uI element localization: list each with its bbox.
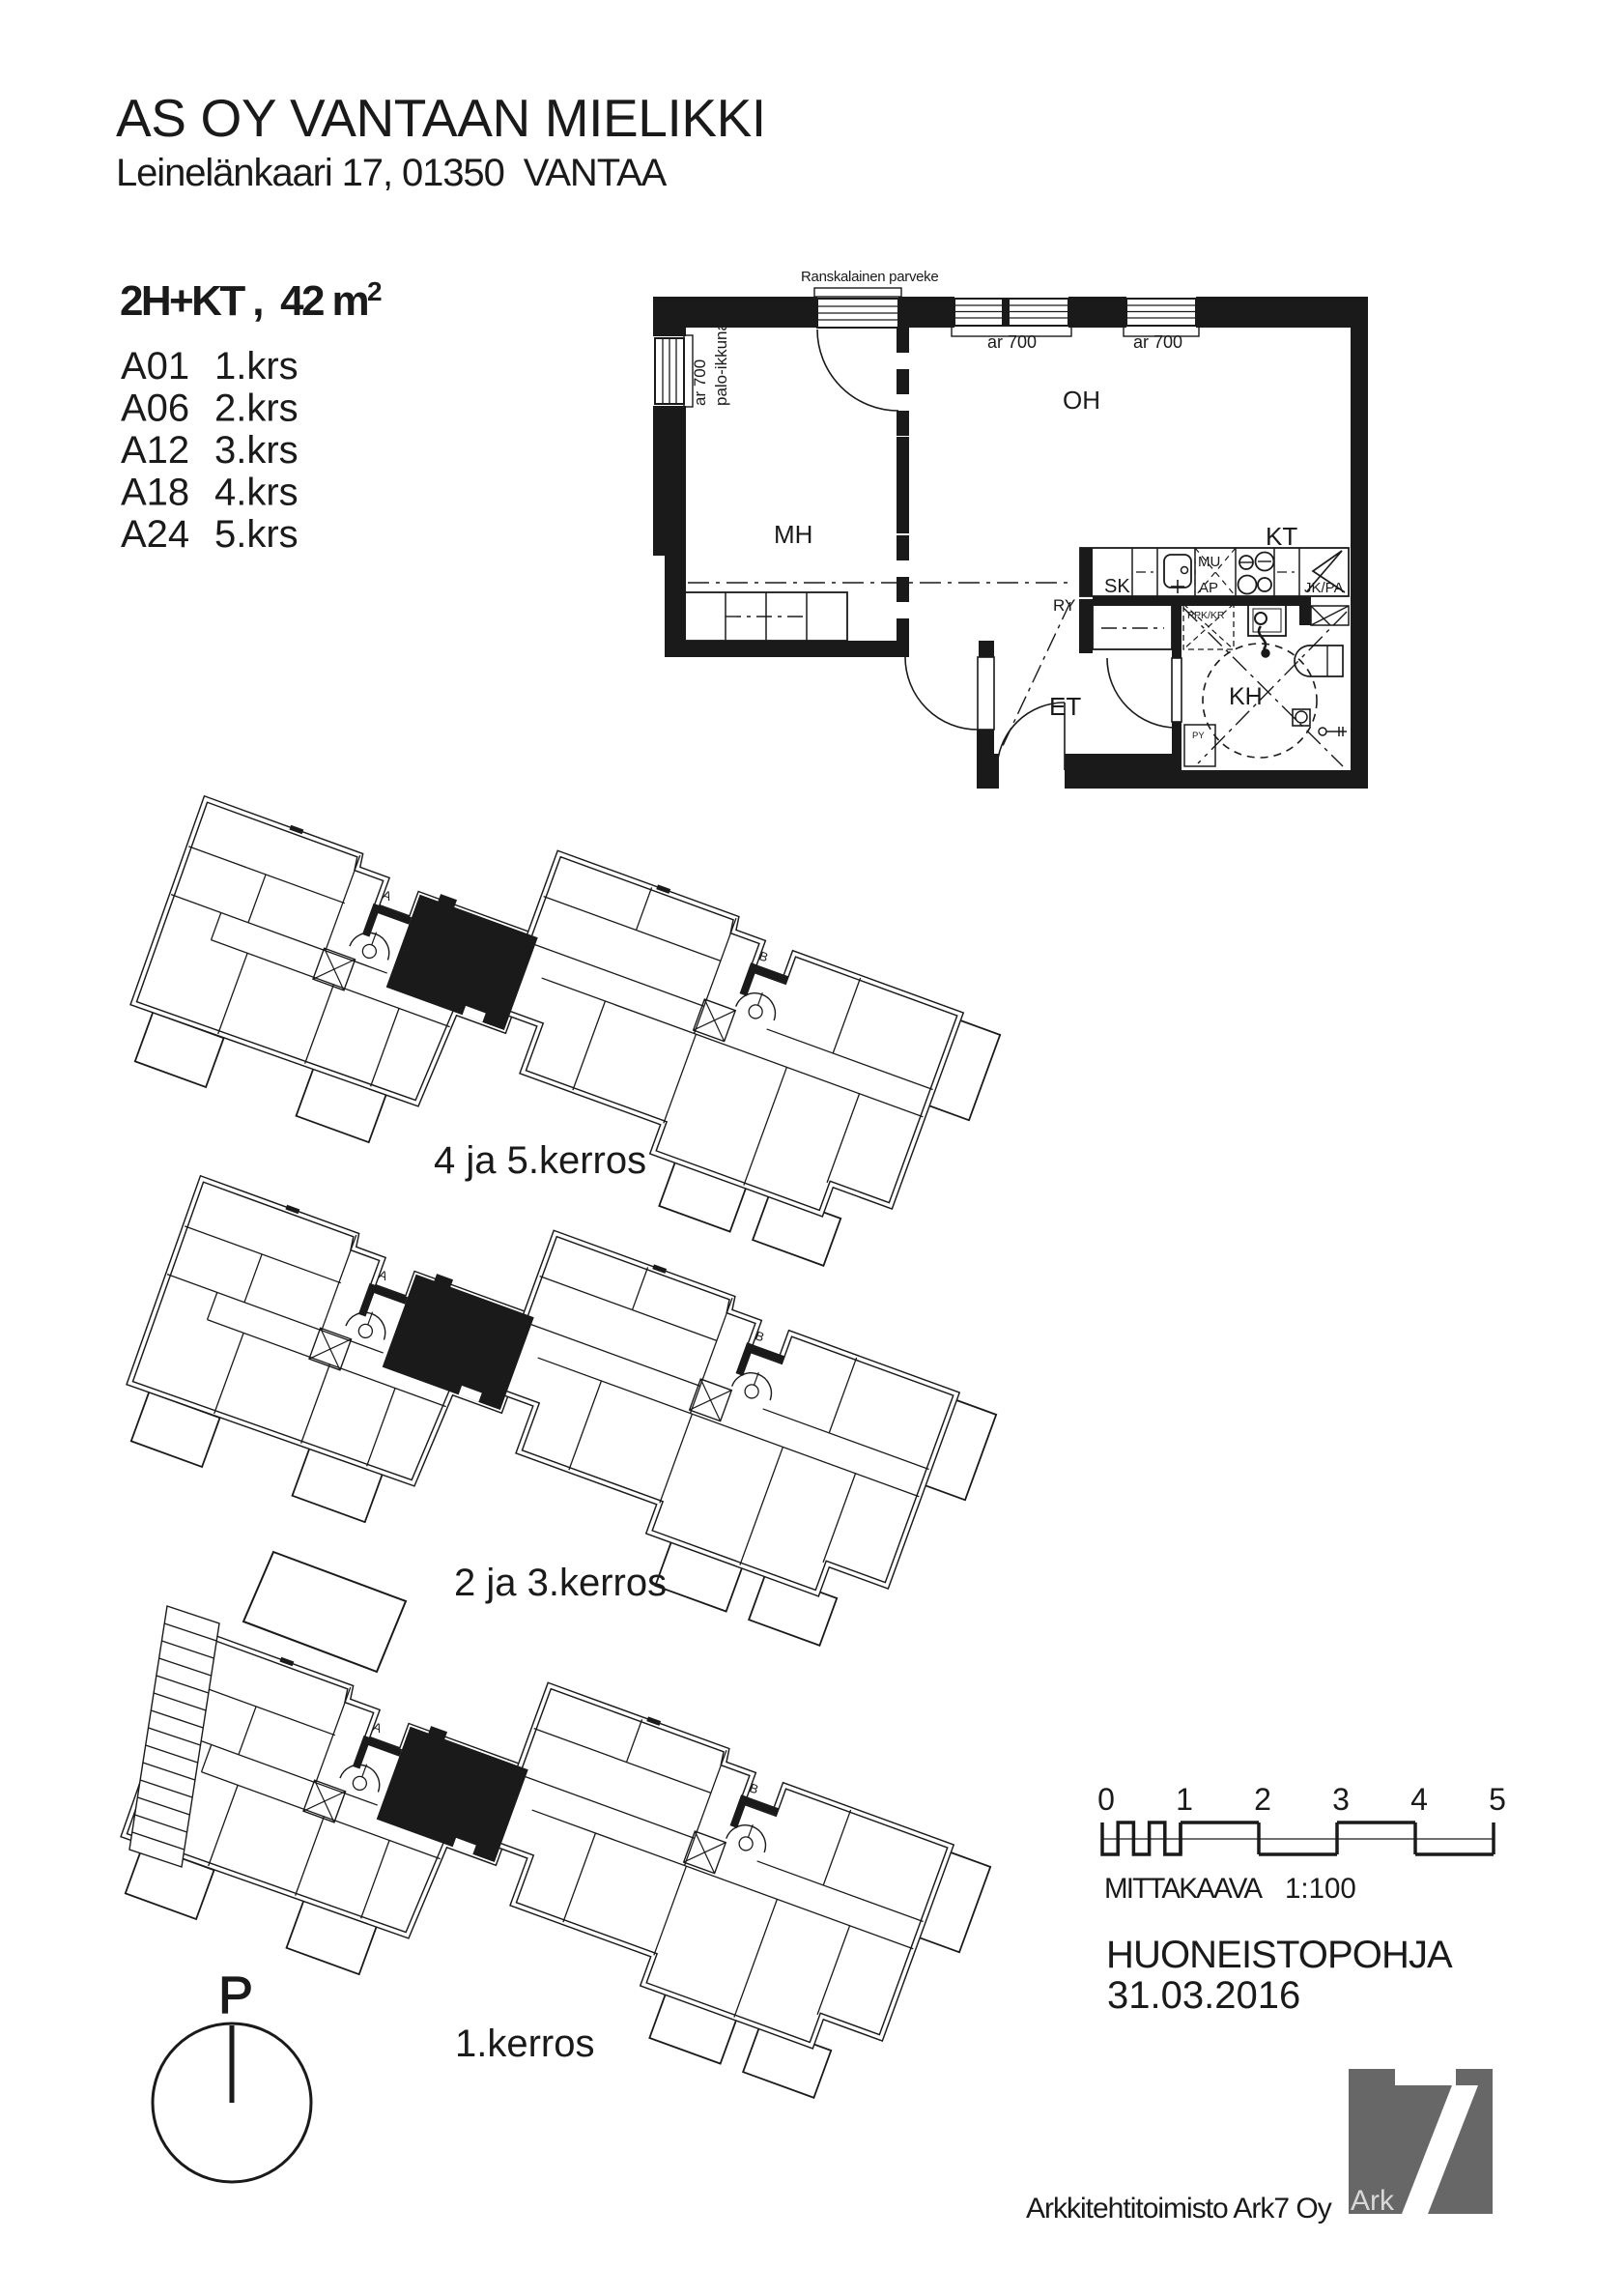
svg-text:2H+KT , 42 m2: 2H+KT , 42 m2 [120, 276, 382, 325]
svg-text:1: 1 [1176, 1782, 1193, 1817]
svg-text:ar 700: ar 700 [691, 359, 709, 406]
svg-text:Leinelänkaari 17, 01350 VANTA: Leinelänkaari 17, 01350 VANTAA [116, 152, 668, 194]
svg-text:A06: A06 [121, 387, 189, 430]
svg-text:2: 2 [1254, 1782, 1271, 1817]
svg-text:KT: KT [1266, 522, 1297, 551]
svg-text:JK/PA: JK/PA [1304, 580, 1344, 596]
svg-text:ar 700: ar 700 [1133, 332, 1182, 352]
svg-text:HUONEISTOPOHJA: HUONEISTOPOHJA [1106, 1934, 1453, 1976]
svg-text:ET: ET [1049, 692, 1081, 721]
svg-text:31.03.2016: 31.03.2016 [1107, 1974, 1300, 2017]
svg-text:2.krs: 2.krs [214, 387, 299, 430]
svg-text:4 ja 5.kerros: 4 ja 5.kerros [434, 1139, 646, 1182]
svg-text:ar 700: ar 700 [987, 332, 1037, 352]
svg-text:AP: AP [1199, 580, 1218, 596]
svg-text:3: 3 [1332, 1782, 1350, 1817]
svg-text:A12: A12 [121, 429, 189, 472]
svg-text:RY: RY [1053, 596, 1075, 615]
svg-text:MH: MH [774, 520, 812, 549]
svg-text:0: 0 [1097, 1782, 1115, 1817]
svg-text:2 ja 3.kerros: 2 ja 3.kerros [454, 1562, 667, 1604]
svg-text:A24: A24 [121, 513, 189, 556]
svg-text:Ranskalainen parveke: Ranskalainen parveke [801, 269, 938, 285]
svg-text:5: 5 [1489, 1782, 1506, 1817]
svg-text:AS OY VANTAAN MIELIKKI: AS OY VANTAAN MIELIKKI [116, 88, 766, 148]
svg-text:1.krs: 1.krs [214, 345, 299, 387]
svg-text:A01: A01 [121, 345, 189, 387]
svg-text:3.krs: 3.krs [214, 429, 299, 472]
svg-text:KH: KH [1229, 683, 1263, 710]
svg-text:5.krs: 5.krs [214, 513, 299, 556]
svg-text:A18: A18 [121, 472, 189, 514]
svg-text:1:100: 1:100 [1285, 1873, 1356, 1905]
svg-text:PPK/KR: PPK/KR [1187, 610, 1225, 621]
svg-text:4.krs: 4.krs [214, 472, 299, 514]
svg-text:MU: MU [1198, 554, 1220, 570]
svg-text:Arkkitehtitoimisto Ark7 Oy: Arkkitehtitoimisto Ark7 Oy [1026, 2193, 1332, 2224]
svg-text:Ark: Ark [1351, 2185, 1395, 2217]
svg-text:palo-ikkuna: palo-ikkuna [712, 322, 730, 406]
svg-text:OH: OH [1063, 386, 1100, 415]
svg-text:1.kerros: 1.kerros [455, 2023, 595, 2065]
svg-text:4: 4 [1410, 1782, 1428, 1817]
svg-text:MITTAKAAVA: MITTAKAAVA [1104, 1873, 1263, 1905]
svg-text:P: P [218, 1966, 253, 2024]
svg-text:PY: PY [1192, 731, 1205, 741]
svg-text:SK: SK [1104, 576, 1130, 597]
